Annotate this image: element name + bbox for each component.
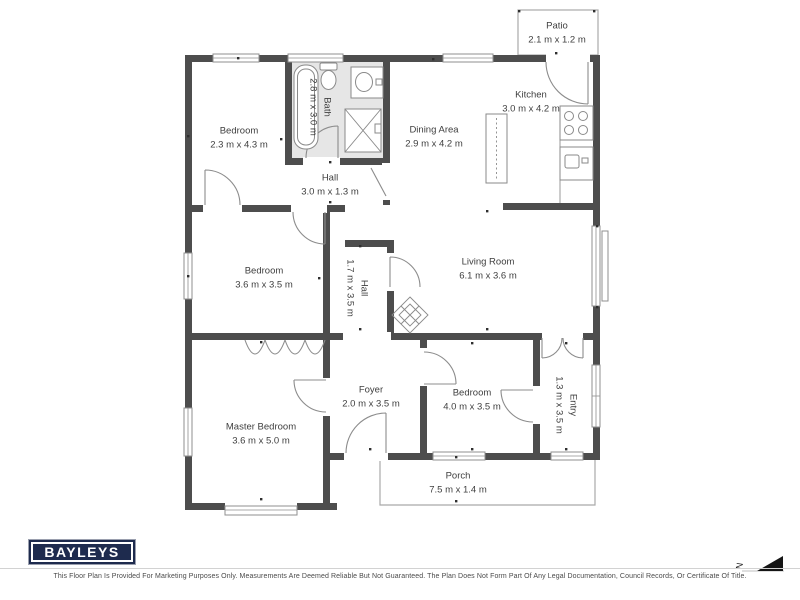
room-label-hall-lower: Hall 1.7 m x 3.5 m: [344, 259, 371, 317]
room-dims: 3.0 m x 4.2 m: [502, 102, 560, 116]
fireplace: [392, 297, 428, 333]
room-name: Hall: [357, 259, 371, 317]
room-name: Dining Area: [405, 124, 463, 138]
room-label-bedroom-top: Bedroom 2.3 m x 4.3 m: [210, 125, 268, 152]
room-label-dining-area: Dining Area 2.9 m x 4.2 m: [405, 124, 463, 151]
room-dims: 2.1 m x 1.2 m: [528, 33, 586, 47]
room-label-entry: Entry 1.3 m x 3.5 m: [553, 376, 580, 434]
room-label-patio: Patio 2.1 m x 1.2 m: [528, 20, 586, 47]
room-dims: 3.0 m x 1.3 m: [301, 185, 359, 199]
room-label-bedroom-mid: Bedroom 3.6 m x 3.5 m: [235, 265, 293, 292]
room-name: Hall: [301, 172, 359, 186]
stove-cooktop: [560, 106, 593, 140]
bayleys-logo-text: BAYLEYS: [44, 544, 119, 560]
floor-plan-page: Patio 2.1 m x 1.2 m Kitchen 3.0 m x 4.2 …: [0, 0, 800, 600]
vanity-basin: [351, 67, 383, 98]
room-label-bedroom-rear: Bedroom 4.0 m x 3.5 m: [443, 387, 501, 414]
room-dims: 2.3 m x 4.3 m: [210, 138, 268, 152]
room-name: Bedroom: [235, 265, 293, 279]
room-name: Bedroom: [210, 125, 268, 139]
room-name: Master Bedroom: [226, 421, 296, 435]
room-dims: 2.0 m x 3.5 m: [342, 397, 400, 411]
kitchen-sink: [560, 147, 593, 180]
room-name: Foyer: [342, 384, 400, 398]
room-label-hall-upper: Hall 3.0 m x 1.3 m: [301, 172, 359, 199]
room-name: Bedroom: [443, 387, 501, 401]
room-name: Living Room: [459, 256, 517, 270]
closet-bifold-doors: [245, 340, 325, 354]
room-name: Entry: [566, 376, 580, 434]
room-dims: 4.0 m x 3.5 m: [443, 400, 501, 414]
room-name: Patio: [528, 20, 586, 34]
room-dims: 7.5 m x 1.4 m: [429, 483, 487, 497]
room-dims: 1.7 m x 3.5 m: [344, 259, 358, 317]
room-dims: 2.9 m x 4.2 m: [405, 137, 463, 151]
room-dims: 2.8 m x 3.0 m: [307, 78, 321, 136]
room-dims: 3.6 m x 3.5 m: [235, 278, 293, 292]
bayleys-logo-frame: BAYLEYS: [31, 542, 133, 562]
room-label-bath: Bath 2.8 m x 3.0 m: [307, 78, 334, 136]
footer-divider: [0, 568, 800, 569]
room-dims: 1.3 m x 3.5 m: [553, 376, 567, 434]
room-label-living-room: Living Room 6.1 m x 3.6 m: [459, 256, 517, 283]
room-name: Kitchen: [502, 89, 560, 103]
room-label-porch: Porch 7.5 m x 1.4 m: [429, 470, 487, 497]
room-label-master-bedroom: Master Bedroom 3.6 m x 5.0 m: [226, 421, 296, 448]
room-dims: 3.6 m x 5.0 m: [226, 434, 296, 448]
kitchen-island-bench: [486, 114, 507, 183]
disclaimer-text: This Floor Plan Is Provided For Marketin…: [0, 573, 800, 580]
room-name: Bath: [320, 78, 334, 136]
room-name: Porch: [429, 470, 487, 484]
shower: [345, 109, 381, 152]
room-label-kitchen: Kitchen 3.0 m x 4.2 m: [502, 89, 560, 116]
room-label-foyer: Foyer 2.0 m x 3.5 m: [342, 384, 400, 411]
room-dims: 6.1 m x 3.6 m: [459, 269, 517, 283]
porch-outline: [380, 460, 595, 505]
floor-plan-drawing: [0, 0, 800, 600]
bayleys-logo: BAYLEYS: [28, 539, 136, 565]
